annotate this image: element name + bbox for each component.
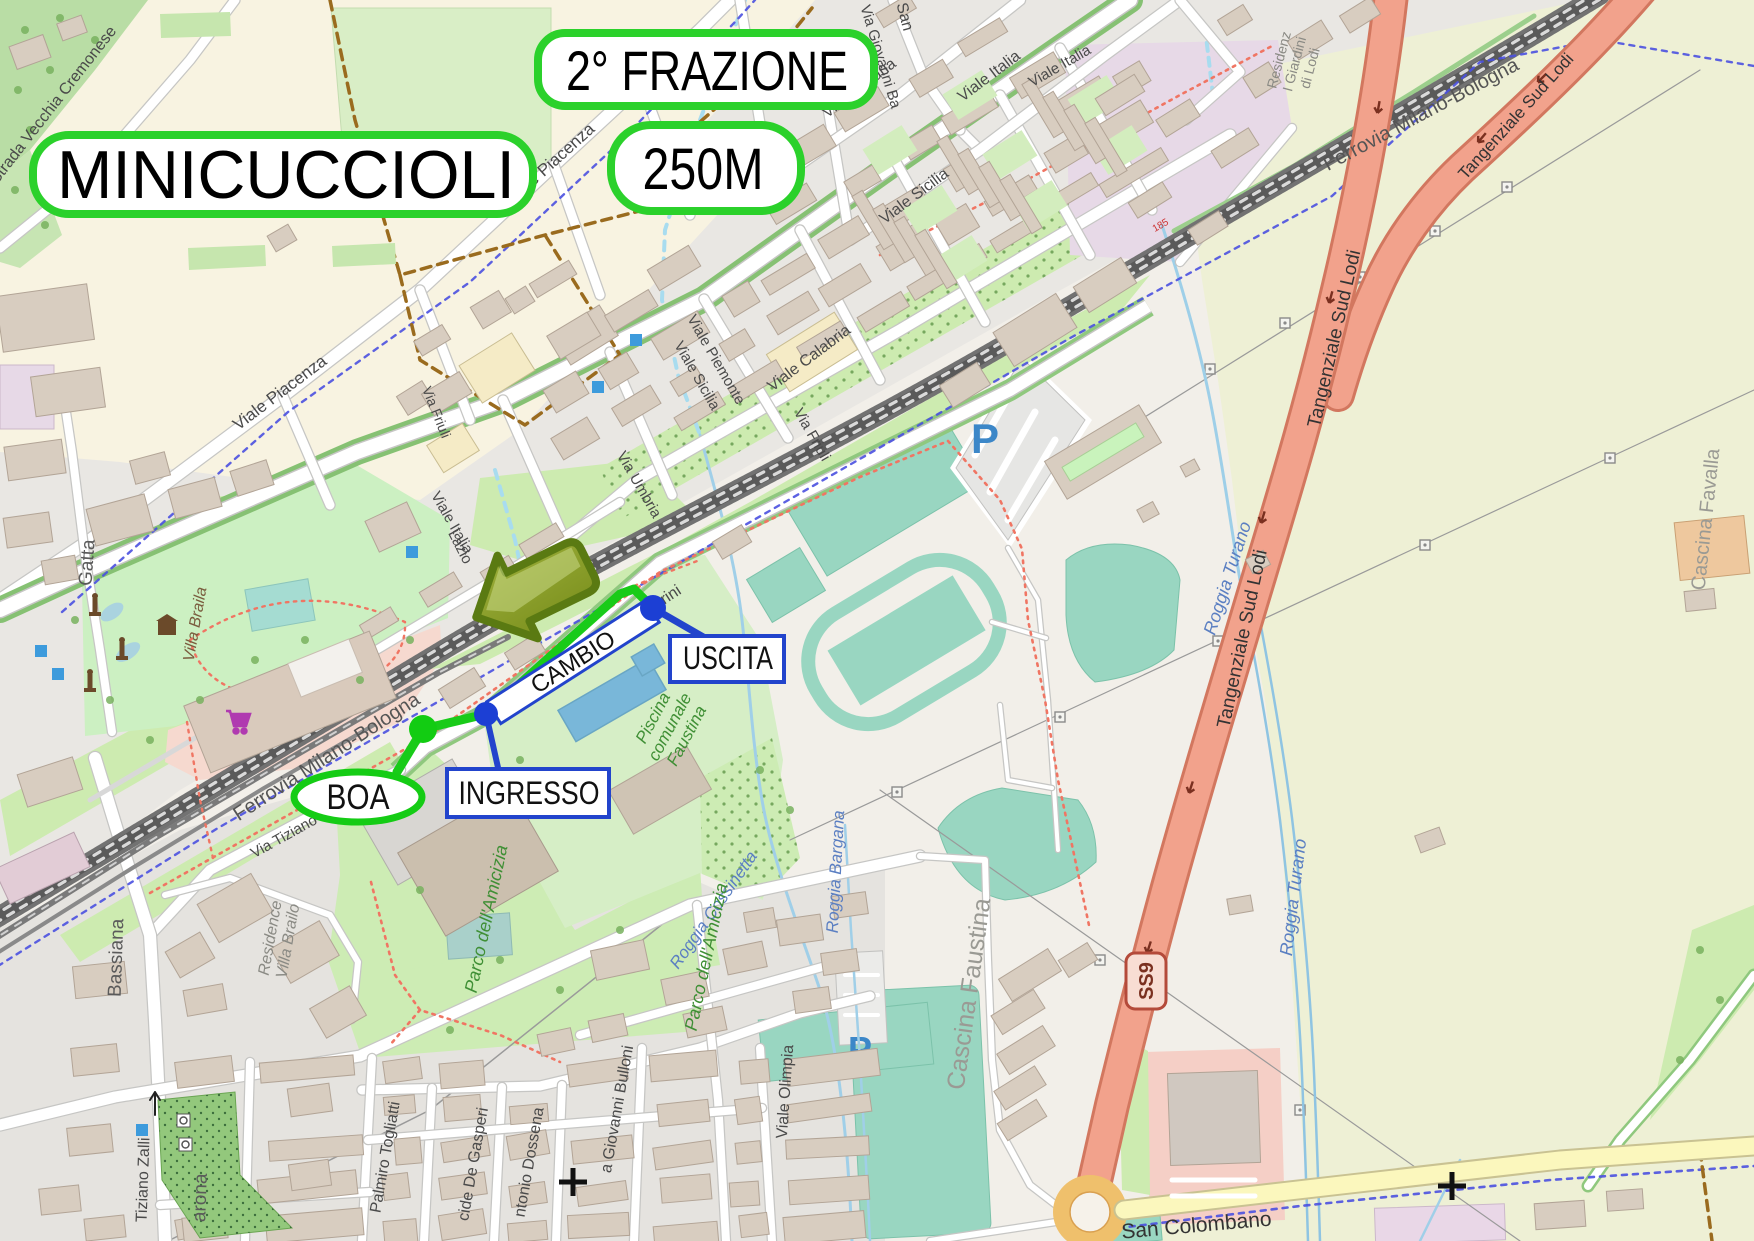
svg-text:BOA: BOA (327, 778, 391, 817)
svg-text:arona: arona (189, 1173, 212, 1223)
svg-text:Tiziano Zalli: Tiziano Zalli (134, 1137, 154, 1222)
svg-text:250M: 250M (643, 137, 764, 202)
svg-text:USCITA: USCITA (683, 640, 774, 676)
svg-text:2° FRAZIONE: 2° FRAZIONE (566, 39, 848, 102)
svg-text:Bassiana: Bassiana (105, 918, 129, 997)
svg-text:INGRESSO: INGRESSO (459, 775, 600, 811)
svg-text:SS9: SS9 (1136, 962, 1158, 1000)
svg-text:Gatta: Gatta (75, 538, 99, 586)
svg-text:MINICUCCIOLI: MINICUCCIOLI (57, 137, 515, 213)
svg-text:P: P (971, 415, 999, 462)
